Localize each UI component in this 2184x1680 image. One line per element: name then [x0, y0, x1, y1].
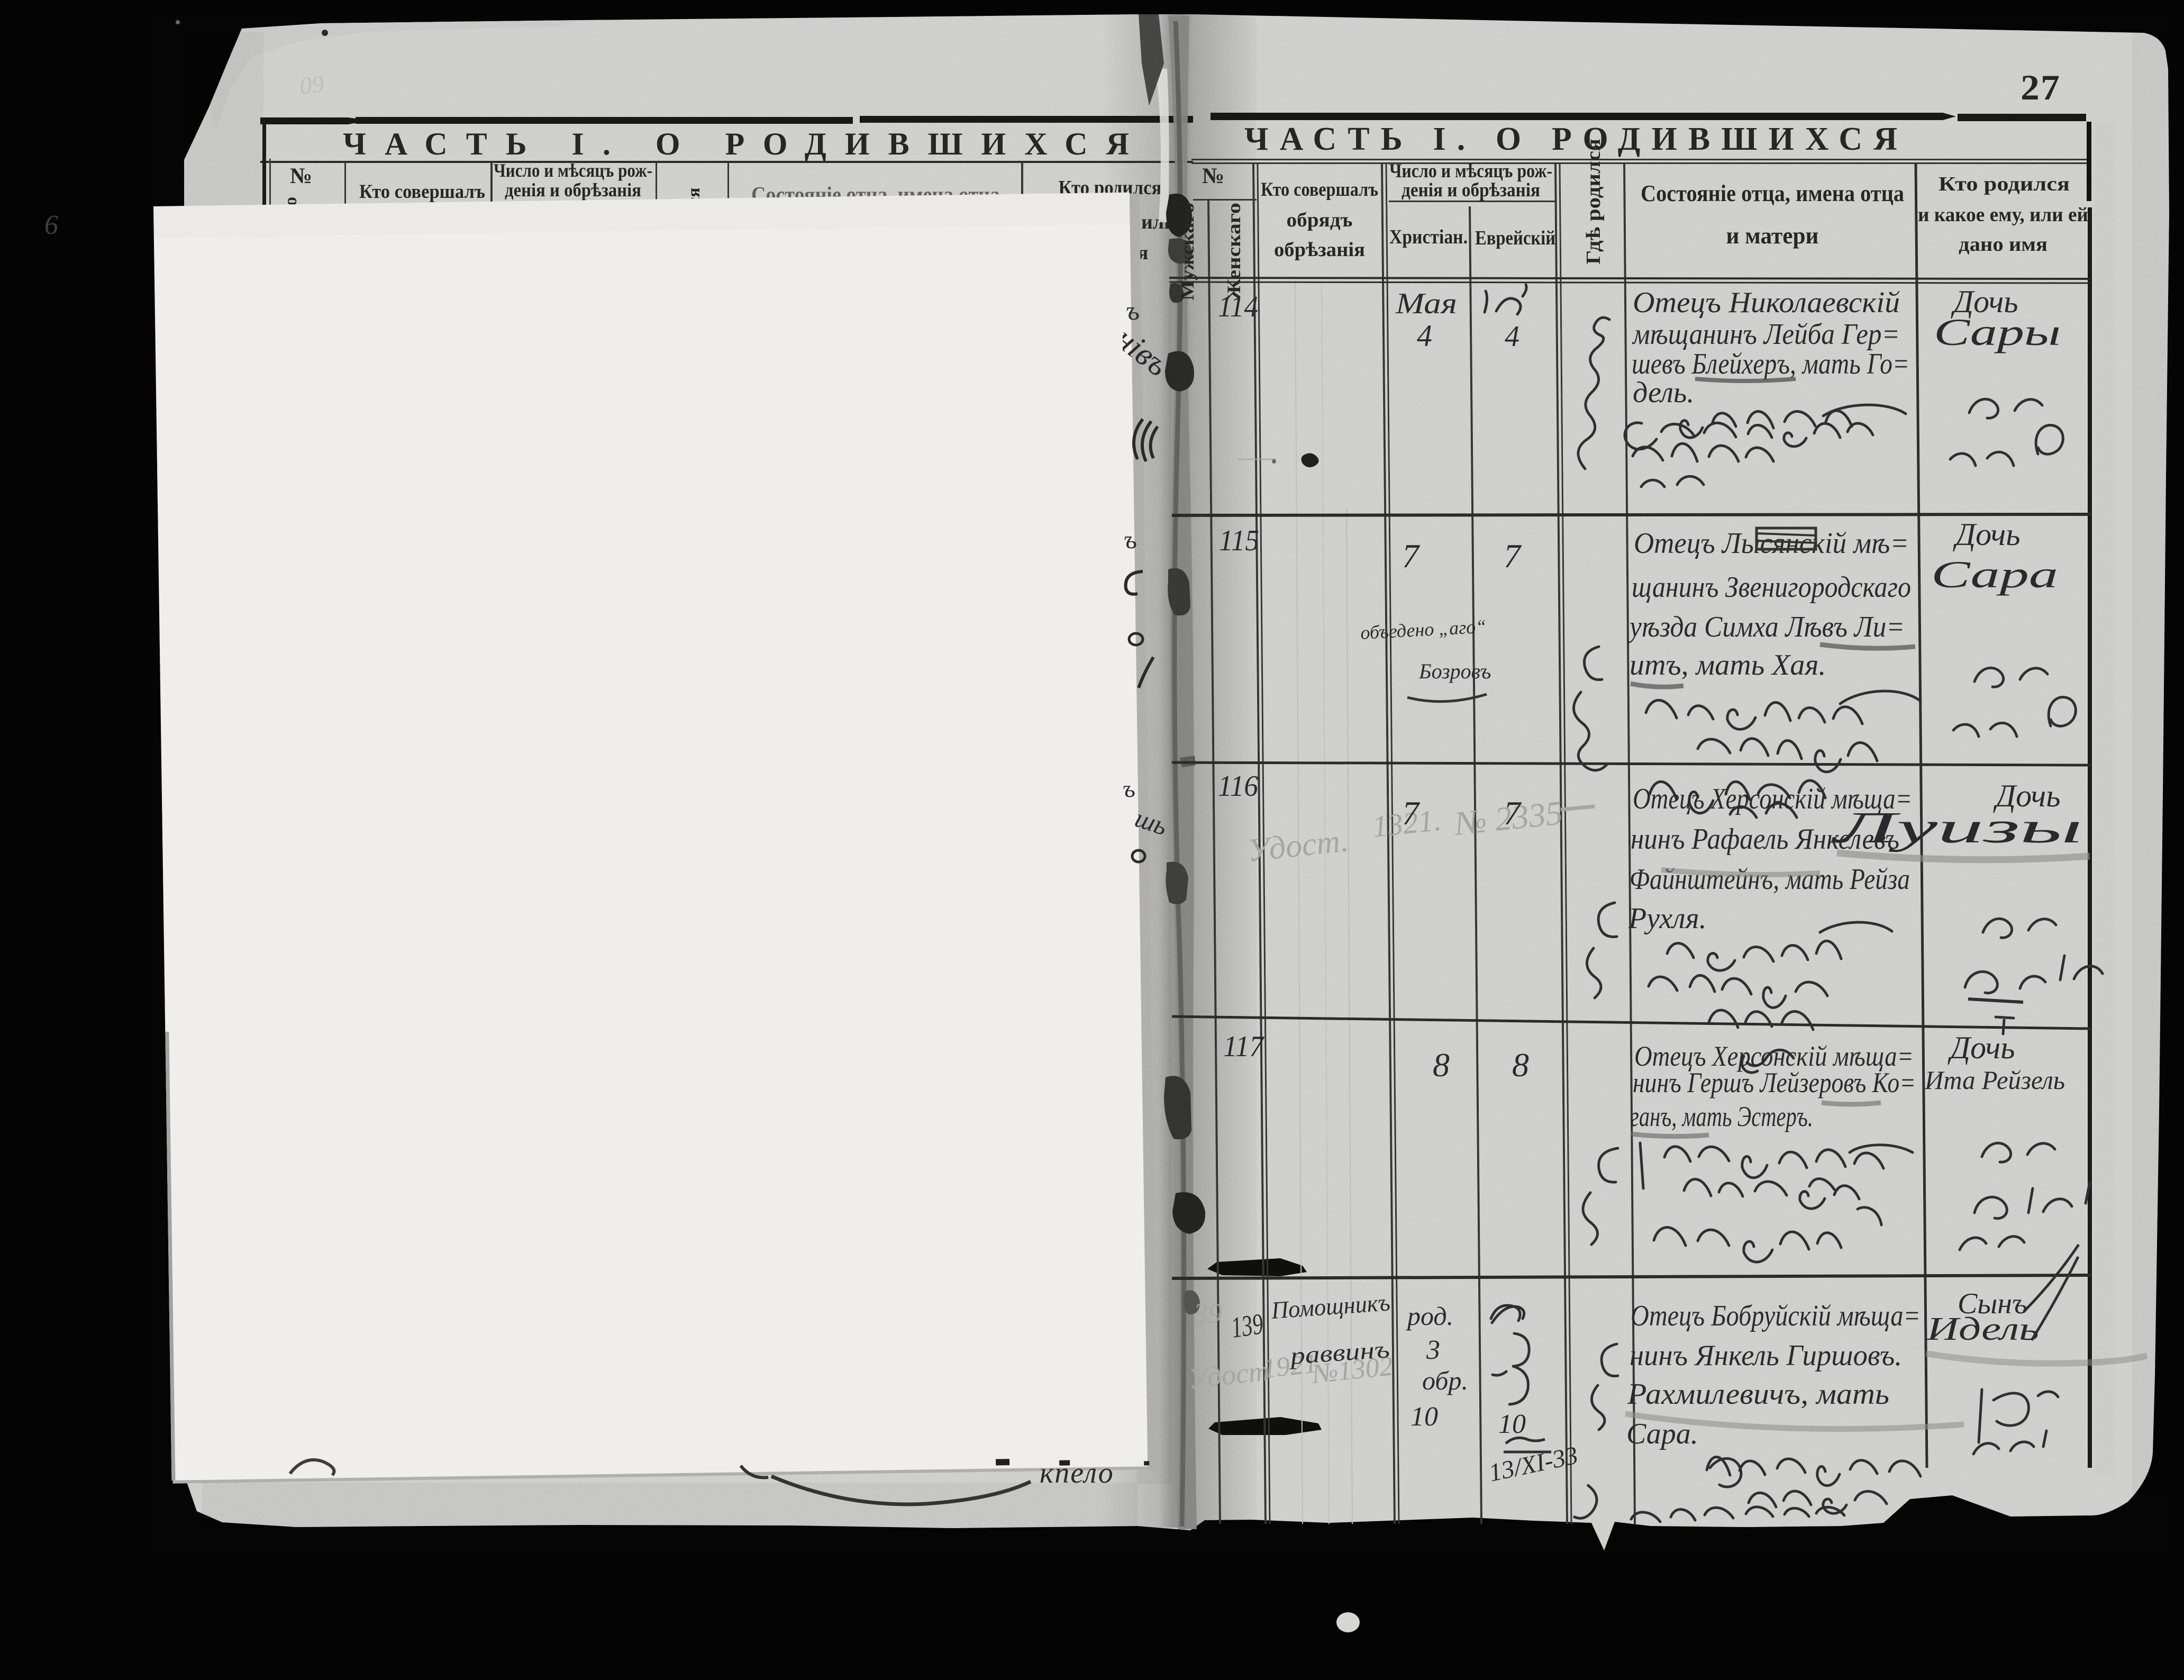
svg-text:6: 6 [44, 210, 58, 240]
